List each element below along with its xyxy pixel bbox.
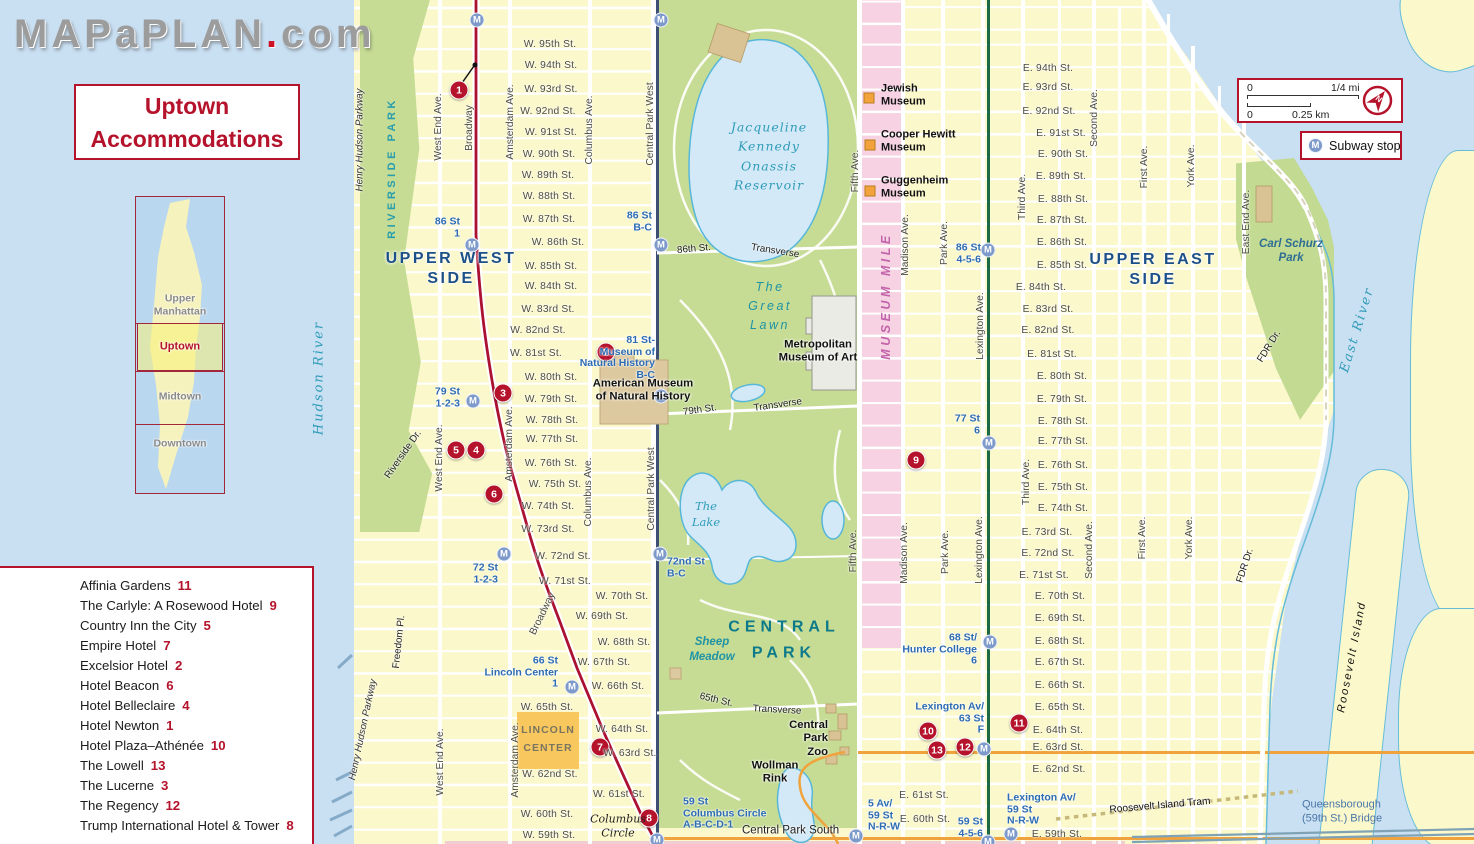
hotel-name: Country Inn the City xyxy=(80,618,197,633)
hotel-number: 4 xyxy=(182,698,189,713)
street-label: E. 81st St. xyxy=(1027,349,1077,361)
street-label: E. 79th St. xyxy=(1037,394,1087,406)
street-label: W. 63rd St. xyxy=(603,748,656,760)
map-label: Central Park Zoo xyxy=(789,719,828,759)
avenue-label: East End Ave. xyxy=(1241,190,1253,255)
map-label: Carl Schurz Park xyxy=(1259,238,1323,266)
avenue-label: Second Ave. xyxy=(1089,89,1101,147)
avenue-label: Amsterdam Ave. xyxy=(510,722,522,797)
subway-station-label: 86 St 1 xyxy=(435,216,460,239)
hotel-number: 11 xyxy=(178,578,192,593)
map-label: The Great Lawn xyxy=(748,278,792,334)
map-label: Wollman Rink xyxy=(752,760,799,787)
map-label: Queensborough (59th St.) Bridge xyxy=(1302,798,1382,826)
avenue-label: Columbus Ave. xyxy=(583,457,595,526)
subway-stop-icon[interactable]: M xyxy=(982,436,997,451)
map-label: Columbus Circle xyxy=(590,812,646,840)
avenue-label: York Ave. xyxy=(1184,517,1196,560)
street-label: W. 64th St. xyxy=(596,724,649,736)
street-label: W. 76th St. xyxy=(525,458,578,470)
avenue-label: Second Ave. xyxy=(1084,521,1096,579)
hotel-marker-6[interactable]: 6 xyxy=(485,485,504,504)
subway-stop-icon[interactable]: M xyxy=(470,13,485,28)
scale-km-start: 0 xyxy=(1247,109,1253,121)
street-label: W. 82nd St. xyxy=(510,325,565,337)
street-label: E. 85th St. xyxy=(1037,260,1087,272)
hotel-marker-4[interactable]: 4 xyxy=(467,441,486,460)
street-label: W. 86th St. xyxy=(532,237,585,249)
street-label: W. 84th St. xyxy=(525,281,578,293)
street-label: W. 93rd St. xyxy=(524,84,577,96)
avenue-label: West End Ave. xyxy=(434,424,446,491)
subway-station-label: Lexington Av/ 59 St N-R-W xyxy=(1007,793,1076,828)
street-label: W. 87th St. xyxy=(523,214,576,226)
map-label: LINCOLN CENTER xyxy=(521,722,575,758)
street-label: W. 60th St. xyxy=(521,809,574,821)
subway-station-label: 72nd St B-C xyxy=(667,556,705,579)
hotel-name: Excelsior Hotel xyxy=(80,658,168,673)
subway-stop-icon[interactable]: M xyxy=(1004,827,1019,842)
minimap-section-downtown: Downtown xyxy=(136,438,224,451)
hotel-legend-item[interactable]: The Carlyle: A Rosewood Hotel9 xyxy=(80,596,312,616)
street-label: W. 74th St. xyxy=(522,501,575,513)
street-label: E. 77th St. xyxy=(1038,436,1088,448)
hotel-name: Empire Hotel xyxy=(80,638,156,653)
street-label: E. 84th St. xyxy=(1016,282,1066,294)
street-label: E. 66th St. xyxy=(1035,680,1085,692)
map-label: MUSEUM MILE xyxy=(879,232,893,359)
street-label: W. 83rd St. xyxy=(521,304,574,316)
avenue-label: First Ave. xyxy=(1139,146,1151,189)
street-label: W. 85th St. xyxy=(525,261,578,273)
avenue-label: Third Ave. xyxy=(1017,174,1029,220)
hotel-number: 6 xyxy=(166,678,173,693)
subway-legend-label: Subway stop xyxy=(1329,139,1401,153)
street-label: E. 86th St. xyxy=(1037,237,1087,249)
hotel-marker-5[interactable]: 5 xyxy=(447,441,466,460)
street-label: E. 80th St. xyxy=(1037,371,1087,383)
hotel-marker-11[interactable]: 11 xyxy=(1010,714,1029,733)
street-label: E. 90th St. xyxy=(1038,149,1088,161)
map-label: Metropolitan Museum of Art xyxy=(779,339,858,366)
street-label: E. 91st St. xyxy=(1036,128,1086,140)
hotel-name: Trump International Hotel & Tower xyxy=(80,818,279,833)
subway-station-label: 68 St/ Hunter College 6 xyxy=(902,633,977,668)
hotel-legend-item[interactable]: Empire Hotel7 xyxy=(80,636,312,656)
hotel-legend-item[interactable]: Affinia Gardens11 xyxy=(80,576,312,596)
street-label: W. 88th St. xyxy=(523,191,576,203)
minimap-section-upper: Upper Manhattan xyxy=(136,292,224,317)
map-label: The Lake xyxy=(692,498,720,530)
hotel-number: 13 xyxy=(151,758,166,773)
street-label: W. 62nd St. xyxy=(522,769,577,781)
hotel-number: 1 xyxy=(166,718,173,733)
subway-stop-icon[interactable]: M xyxy=(981,243,996,258)
hotel-legend-item[interactable]: Hotel Plaza–Athénée10 xyxy=(80,736,312,756)
hotel-legend-item[interactable]: The Regency12 xyxy=(80,796,312,816)
avenue-label: Broadway xyxy=(464,105,476,151)
subway-station-label: 81 St- Museum of Natural History B-C xyxy=(580,335,655,381)
hotel-number: 3 xyxy=(161,778,168,793)
street-label: E. 61st St. xyxy=(899,790,949,802)
map-label: American Museum of Natural History xyxy=(593,378,693,405)
hotel-legend-item[interactable]: Hotel Belleclaire4 xyxy=(80,696,312,716)
street-label: E. 69th St. xyxy=(1035,613,1085,625)
street-label: W. 91st St. xyxy=(525,127,577,139)
hotel-number: 7 xyxy=(163,638,170,653)
street-label: E. 70th St. xyxy=(1035,591,1085,603)
subway-stop-legend: M Subway stop xyxy=(1300,131,1402,160)
subway-station-label: 72 St 1-2-3 xyxy=(473,562,498,585)
museum-marker-icon xyxy=(865,140,876,151)
hotel-number: 2 xyxy=(175,658,182,673)
street-label: E. 75th St. xyxy=(1038,482,1088,494)
subway-station-label: 79 St 1-2-3 xyxy=(435,386,460,409)
hotel-legend-item[interactable]: Hotel Newton1 xyxy=(80,716,312,736)
hotel-legend-item[interactable]: Trump International Hotel & Tower8 xyxy=(80,816,312,836)
minimap-section-divider xyxy=(136,424,224,425)
street-label: E. 93rd St. xyxy=(1023,82,1074,94)
hotel-name: Hotel Plaza–Athénée xyxy=(80,738,204,753)
avenue-label: Park Ave. xyxy=(939,221,951,265)
hotel-number: 12 xyxy=(165,798,180,813)
street-label: W. 65th St. xyxy=(521,702,574,714)
street-label: E. 68th St. xyxy=(1035,636,1085,648)
avenue-label: Park Ave. xyxy=(940,530,952,574)
subway-stop-icon[interactable]: M xyxy=(654,238,669,253)
hotel-name: Hotel Beacon xyxy=(80,678,159,693)
scale-box: 0 1/4 mi 0 0.25 km N xyxy=(1237,78,1403,123)
street-label: W. 80th St. xyxy=(525,372,578,384)
subway-stop-icon[interactable]: M xyxy=(565,680,580,695)
street-label: E. 89th St. xyxy=(1036,171,1086,183)
map-label: Henry Hudson Parkway xyxy=(356,89,367,192)
avenue-label: Lexington Ave. xyxy=(974,516,986,583)
subway-stop-icon[interactable]: M xyxy=(983,635,998,650)
street-label: W. 71st St. xyxy=(539,576,591,588)
hotel-name: The Regency xyxy=(80,798,158,813)
street-label: E. 76th St. xyxy=(1038,460,1088,472)
street-label: W. 72nd St. xyxy=(535,551,590,563)
street-label: W. 61st St. xyxy=(593,789,645,801)
street-label: E. 88th St. xyxy=(1038,194,1088,206)
subway-stop-icon[interactable]: M xyxy=(466,394,481,409)
scale-mi-start: 0 xyxy=(1247,82,1253,94)
street-label: W. 92nd St. xyxy=(520,106,575,118)
map-label: UPPER WEST SIDE xyxy=(386,249,517,289)
street-label: E. 60th St. xyxy=(900,814,950,826)
hotel-legend-item[interactable]: Country Inn the City5 xyxy=(80,616,312,636)
map-label: Jacqueline Kennedy Onassis Reservoir xyxy=(731,117,807,195)
street-label: W. 66th St. xyxy=(592,681,645,693)
map-label: Cooper Hewitt Museum xyxy=(881,128,956,153)
hotel-legend-item[interactable]: Hotel Beacon6 xyxy=(80,676,312,696)
manhattan-overview-minimap: Upper ManhattanUptownMidtownDowntown xyxy=(135,196,225,494)
minimap-section-midtown: Midtown xyxy=(136,391,224,404)
subway-stop-icon[interactable]: M xyxy=(653,547,668,562)
hotel-name: The Lowell xyxy=(80,758,144,773)
street-label: E. 92nd St. xyxy=(1022,106,1075,118)
avenue-label: Third Ave. xyxy=(1021,459,1033,505)
subway-station-label: 86 St 4-5-6 xyxy=(956,242,981,265)
street-label: W. 78th St. xyxy=(526,415,579,427)
street-label: E. 74th St. xyxy=(1038,503,1088,515)
avenue-label: West End Ave. xyxy=(435,728,447,795)
hotel-name: Affinia Gardens xyxy=(80,578,171,593)
hotel-number: 5 xyxy=(204,618,211,633)
page-title: UptownAccommodations xyxy=(74,84,300,160)
avenue-label: York Ave. xyxy=(1186,145,1198,188)
hotel-marker-12[interactable]: 12 xyxy=(956,738,975,757)
minimap-section-divider xyxy=(136,371,224,372)
street-label: W. 90th St. xyxy=(523,149,576,161)
street-label: E. 62nd St. xyxy=(1032,764,1085,776)
avenue-label: Amsterdam Ave. xyxy=(504,406,516,481)
hotel-name: The Lucerne xyxy=(80,778,154,793)
map-label: CENTRAL PARK xyxy=(728,614,839,665)
map-label: Hudson River xyxy=(313,321,328,435)
street-label: W. 73rd St. xyxy=(521,524,574,536)
hotel-name: Hotel Newton xyxy=(80,718,159,733)
street-label: E. 83rd St. xyxy=(1023,304,1074,316)
avenue-label: Central Park West xyxy=(646,447,658,530)
street-label: E. 82nd St. xyxy=(1021,325,1074,337)
hotel-number: 9 xyxy=(270,598,277,613)
avenue-label: Lexington Ave. xyxy=(975,292,987,359)
hotel-name: Hotel Belleclaire xyxy=(80,698,175,713)
map-label: Sheep Meadow xyxy=(689,635,734,665)
subway-station-label: 77 St 6 xyxy=(955,413,980,436)
subway-station-label: 5 Av/ 59 St N-R-W xyxy=(868,799,900,834)
street-label: E. 64th St. xyxy=(1033,725,1083,737)
subway-station-label: 59 St 4-5-6 xyxy=(958,816,983,839)
street-label: W. 94th St. xyxy=(525,60,578,72)
hotel-legend-item[interactable]: The Lucerne3 xyxy=(80,776,312,796)
subway-stop-icon[interactable]: M xyxy=(650,833,665,844)
subway-station-label: Lexington Av/ 63 St F xyxy=(915,702,984,737)
avenue-label: West End Ave. xyxy=(433,93,445,160)
street-label: E. 87th St. xyxy=(1037,215,1087,227)
street-label: E. 67th St. xyxy=(1035,657,1085,669)
site-logo: MAPaPLAN.com xyxy=(14,12,375,57)
hotel-legend-item[interactable]: The Lowell13 xyxy=(80,756,312,776)
compass-icon: N xyxy=(1362,85,1393,116)
hotel-number: 10 xyxy=(211,738,226,753)
street-label: E. 78th St. xyxy=(1038,416,1088,428)
hotel-marker-13[interactable]: 13 xyxy=(928,741,947,760)
map-label: Jewish Museum xyxy=(881,82,926,107)
street-label: W. 89th St. xyxy=(522,170,575,182)
scale-ruler-miles xyxy=(1247,95,1359,99)
avenue-label: Madison Ave. xyxy=(900,214,912,276)
avenue-label: Columbus Ave. xyxy=(584,95,596,164)
subway-stop-icon[interactable]: M xyxy=(849,829,864,844)
map-label: UPPER EAST SIDE xyxy=(1089,250,1216,290)
street-label: E. 59th St. xyxy=(1032,829,1082,841)
street-label: E. 73rd St. xyxy=(1022,527,1073,539)
street-label: W. 67th St. xyxy=(578,657,631,669)
map-label: RIVERSIDE PARK xyxy=(386,97,398,239)
avenue-label: Central Park West xyxy=(645,82,657,165)
street-label: W. 68th St. xyxy=(598,637,651,649)
street-label: E. 63rd St. xyxy=(1033,742,1084,754)
scale-km-end: 0.25 km xyxy=(1292,109,1329,121)
avenue-label: First Ave. xyxy=(1137,517,1149,560)
subway-station-label: 59 St Columbus Circle A-B-C-D-1 xyxy=(683,797,766,832)
subway-stop-icon[interactable]: M xyxy=(654,13,669,28)
avenue-label: Fifth Ave. xyxy=(848,530,860,573)
scale-ruler-km xyxy=(1247,103,1311,107)
hotel-marker-3[interactable]: 3 xyxy=(494,384,513,403)
hotel-number: 8 xyxy=(286,818,293,833)
hotel-legend-item[interactable]: Excelsior Hotel2 xyxy=(80,656,312,676)
museum-marker-icon xyxy=(864,93,875,104)
minimap-section-uptown: Uptown xyxy=(136,340,224,353)
street-label: W. 81st St. xyxy=(510,348,562,360)
hotel-marker-1[interactable]: 1 xyxy=(450,81,469,100)
street-label: W. 69th St. xyxy=(576,611,629,623)
minimap-section-divider xyxy=(136,323,224,324)
street-label: W. 79th St. xyxy=(525,394,578,406)
avenue-label: Amsterdam Ave. xyxy=(505,84,517,159)
avenue-label: Madison Ave. xyxy=(899,522,911,584)
street-label: E. 71st St. xyxy=(1019,570,1069,582)
map-label: Guggenheim Museum xyxy=(881,174,948,199)
hotel-name: The Carlyle: A Rosewood Hotel xyxy=(80,598,263,613)
scale-mi-end: 1/4 mi xyxy=(1331,82,1360,94)
museum-marker-icon xyxy=(865,186,876,197)
street-label: W. 59th St. xyxy=(523,830,576,842)
street-label: W. 95th St. xyxy=(524,39,577,51)
uptown-map[interactable]: MAPaPLAN.com UptownAccommodations Upper … xyxy=(0,0,1474,844)
hotel-legend: Affinia Gardens11The Carlyle: A Rosewood… xyxy=(0,566,314,844)
subway-stop-icon[interactable]: M xyxy=(977,742,992,757)
subway-station-label: 86 St B-C xyxy=(627,210,652,233)
avenue-label: Fifth Ave. xyxy=(850,150,862,193)
logo-dot: . xyxy=(266,12,281,56)
street-label: E. 65th St. xyxy=(1035,702,1085,714)
street-label: E. 94th St. xyxy=(1023,63,1073,75)
subway-icon: M xyxy=(1308,138,1323,153)
subway-stop-icon[interactable]: M xyxy=(497,547,512,562)
street-label: W. 75th St. xyxy=(529,479,582,491)
hotel-marker-9[interactable]: 9 xyxy=(907,451,926,470)
street-label: W. 70th St. xyxy=(596,591,649,603)
street-label: W. 77th St. xyxy=(526,434,579,446)
subway-station-label: 66 St Lincoln Center 1 xyxy=(484,656,558,691)
street-label: E. 72nd St. xyxy=(1021,548,1074,560)
